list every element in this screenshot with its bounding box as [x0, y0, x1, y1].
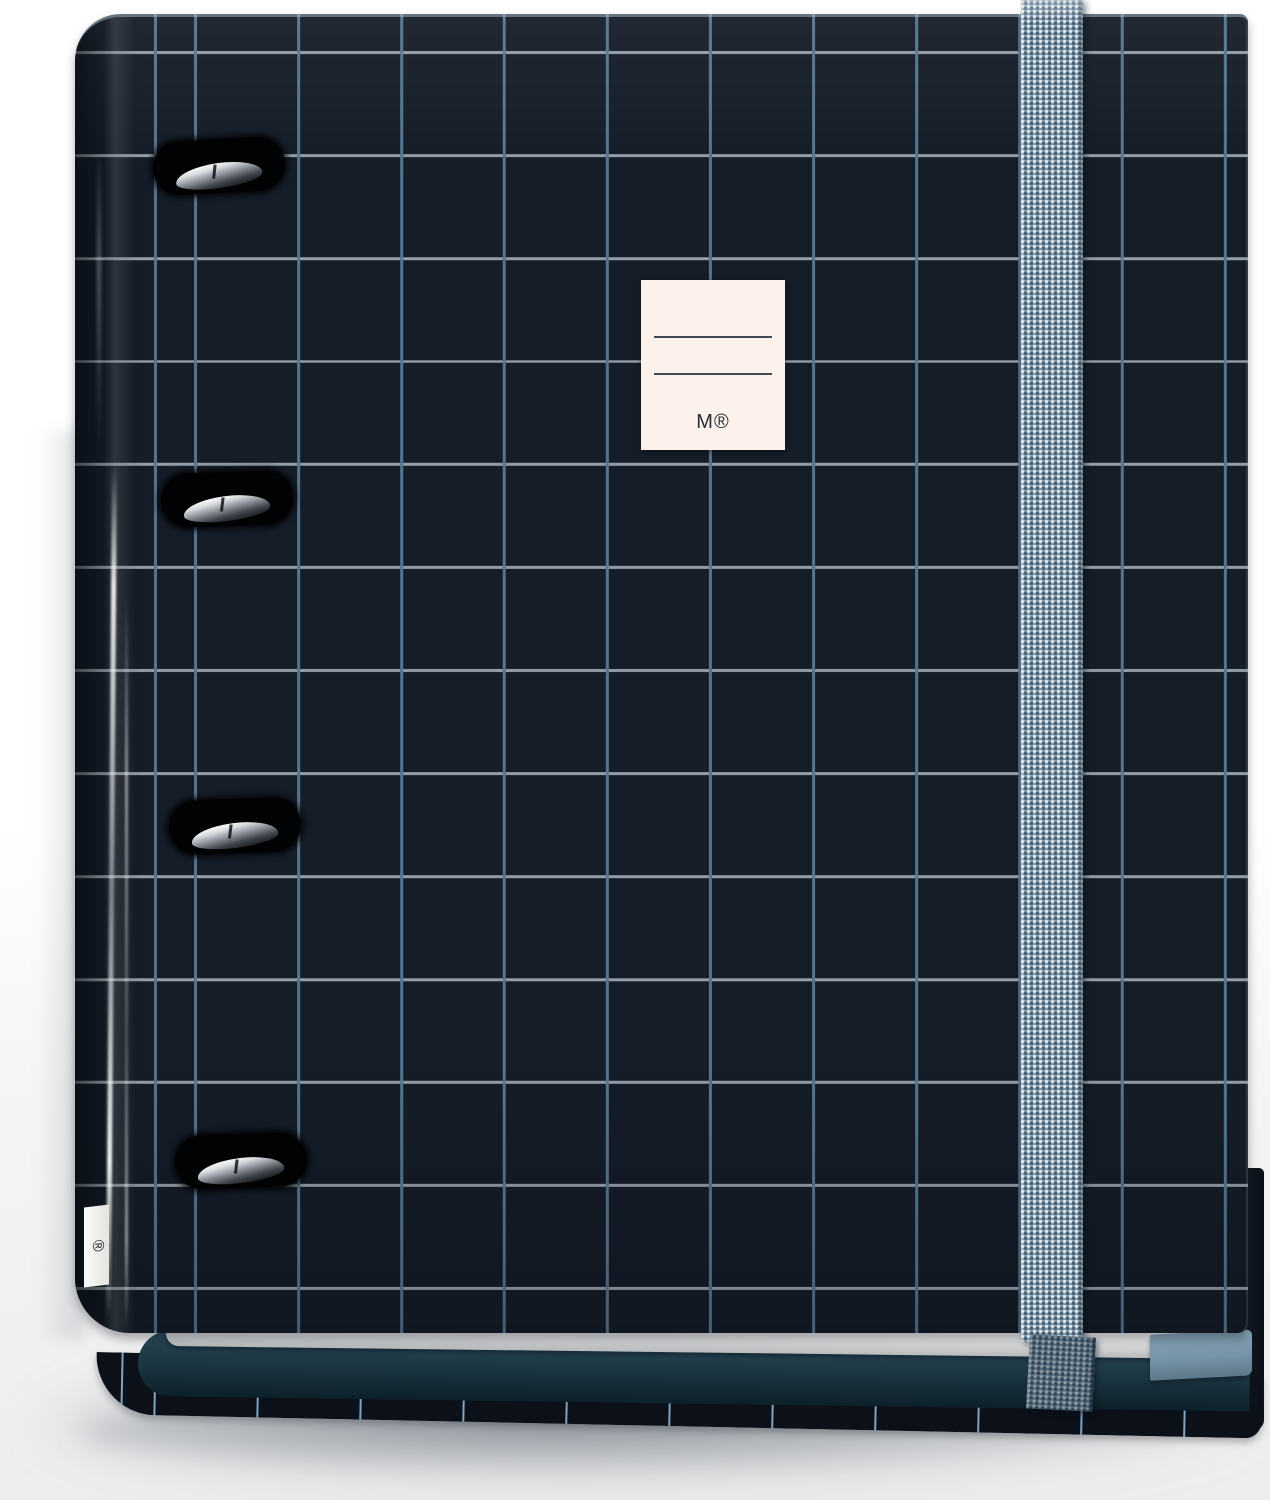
cover-name-label: M® [641, 280, 785, 450]
elastic-band [1021, 0, 1083, 1342]
metal-ring-icon [183, 491, 272, 526]
ring-hole-2 [160, 470, 294, 529]
metal-ring-icon [175, 157, 265, 194]
ring-hole-1 [152, 136, 287, 197]
spine-gloss-highlight [125, 597, 128, 1327]
elastic-band-fold [1026, 1334, 1096, 1411]
spine-registered-label: ® [84, 1204, 109, 1287]
metal-ring-icon [197, 1153, 286, 1188]
divider-tab [1150, 1329, 1252, 1380]
elastic-band-highlight [1021, 0, 1083, 22]
ring-hole-3 [168, 797, 302, 856]
brand-mark: M® [641, 411, 785, 434]
metal-ring-icon [191, 818, 280, 853]
label-writing-line-1 [654, 336, 772, 338]
registered-mark: ® [87, 1239, 105, 1253]
ring-hole-4 [174, 1132, 308, 1191]
label-writing-line-2 [654, 373, 772, 375]
spine-gloss-highlight [97, 147, 101, 447]
